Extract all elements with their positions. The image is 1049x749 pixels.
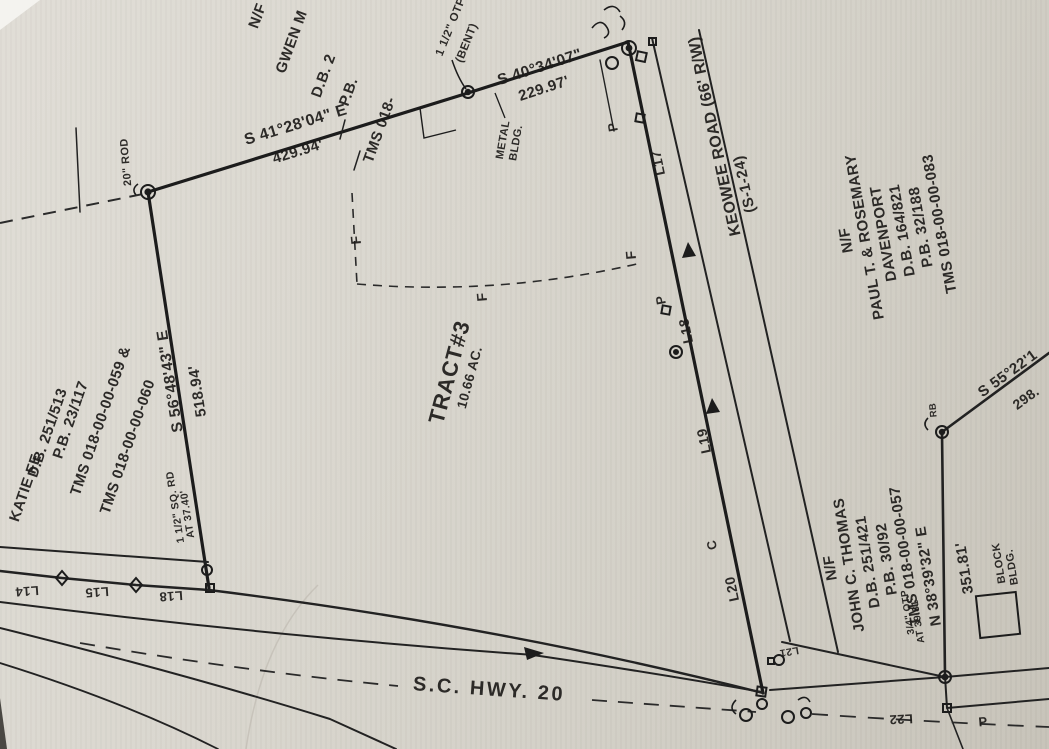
paper-edge-shadow bbox=[0, 698, 7, 749]
hwy-south-edge bbox=[0, 628, 396, 749]
station-tick-2 bbox=[354, 151, 360, 170]
keowee-arrowhead-2 bbox=[706, 398, 720, 414]
line-arrows bbox=[524, 242, 720, 660]
mark-f-3: F bbox=[623, 250, 638, 260]
rb-corner-dot bbox=[940, 430, 944, 434]
otp-bent-dot bbox=[466, 90, 470, 94]
north-adjoiner-dashed-line bbox=[0, 193, 148, 223]
monument-rb-label: RB bbox=[928, 402, 939, 417]
segment-label-l15: L15 bbox=[85, 584, 110, 599]
south-rw-line bbox=[0, 571, 763, 693]
segment-label-l18-southwest: L18 bbox=[159, 588, 184, 603]
corner-c-square-1 bbox=[636, 51, 647, 62]
paper-corner-highlight bbox=[0, 0, 40, 30]
paper-crease bbox=[246, 585, 318, 749]
corner-d-circle-3 bbox=[782, 711, 794, 723]
station-tick-1 bbox=[340, 120, 345, 139]
fence-dashed-line-2 bbox=[357, 263, 641, 287]
segment-label-l21: L21 bbox=[779, 644, 800, 658]
davenport-west-line bbox=[942, 432, 945, 676]
rb-scrawl bbox=[925, 418, 928, 430]
segment-label-l14: L14 bbox=[15, 583, 40, 598]
old-rw-upper-line bbox=[0, 547, 208, 562]
plat-scan: N/F GWEN M D.B. 2 P.B. TMS 018- 1 1/2" O… bbox=[0, 0, 1049, 749]
segment-label-l22: L22 bbox=[889, 712, 913, 727]
corner-d-scrawl bbox=[732, 697, 810, 714]
keowee-point-square-2 bbox=[661, 305, 670, 314]
mark-f-2: F bbox=[474, 292, 489, 302]
plat-linework bbox=[0, 0, 1049, 749]
corner-d-circle-1 bbox=[740, 709, 752, 721]
hwy-centerline-dashed-3 bbox=[812, 714, 1049, 727]
west-tie-line bbox=[76, 128, 80, 212]
corner-c-dot bbox=[627, 46, 632, 51]
hwy-corner-dot bbox=[943, 675, 948, 680]
interior-tie-line bbox=[600, 60, 614, 131]
rod-scribble bbox=[134, 184, 138, 195]
block-bldg-footprint bbox=[976, 592, 1020, 638]
keowee-arrowhead-1 bbox=[682, 242, 696, 258]
hwy-arrowhead bbox=[524, 647, 544, 660]
mark-p-3: P bbox=[978, 715, 988, 729]
thomas-north-line bbox=[782, 642, 945, 677]
mark-f-1: F bbox=[348, 235, 363, 245]
hwy-north-edge-east bbox=[770, 668, 1049, 690]
hwy-centerline-dashed-1 bbox=[80, 643, 398, 686]
rod-monument-dot bbox=[145, 189, 150, 194]
hwy-south-edge-east bbox=[947, 699, 1049, 708]
corner-c-scrawl bbox=[592, 6, 625, 38]
keowee-point-circle-dot bbox=[674, 350, 678, 354]
corner-tail-line bbox=[947, 708, 963, 749]
metal-bldg-leader bbox=[495, 93, 505, 118]
north-bracket-leader bbox=[420, 108, 456, 138]
corner-d-circle-2 bbox=[757, 699, 767, 709]
keowee-west-rw-line bbox=[628, 42, 763, 693]
corner-c-circle-1 bbox=[606, 57, 618, 69]
road-lines bbox=[0, 30, 1049, 749]
keowee-point-square-1 bbox=[635, 113, 644, 122]
corner-d-circle-4 bbox=[801, 708, 811, 718]
